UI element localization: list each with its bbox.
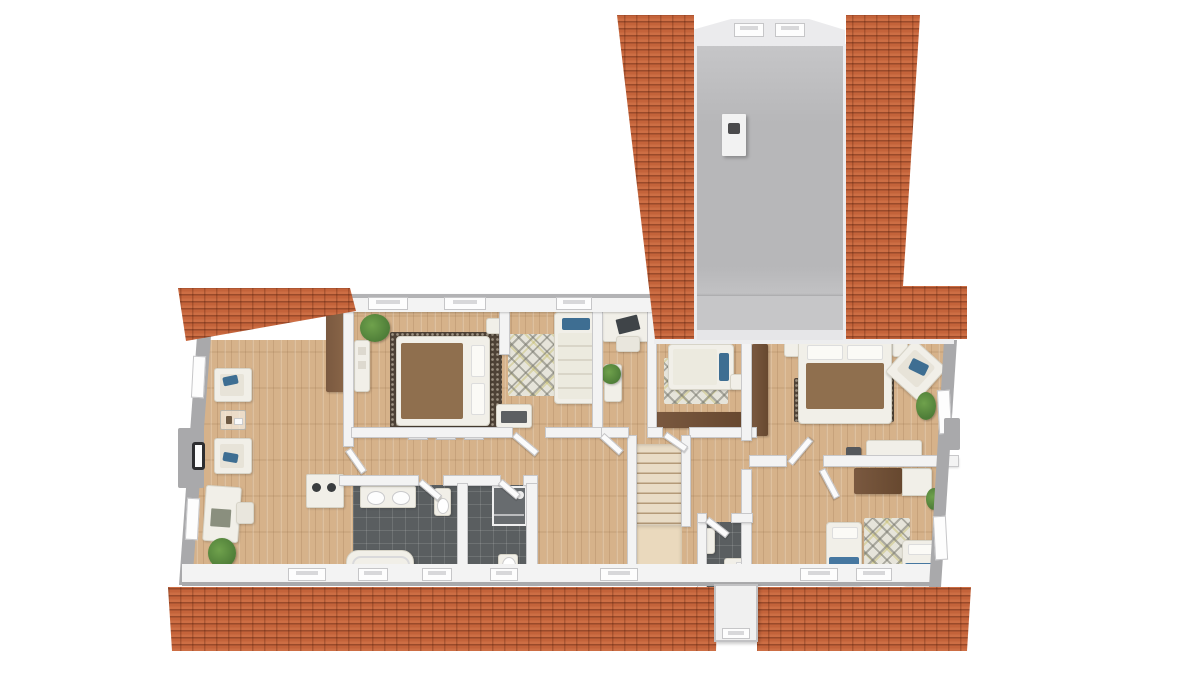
- window: [933, 516, 948, 561]
- bed-pillow: [471, 345, 485, 377]
- single-bed: [668, 344, 734, 390]
- gable-window: [734, 23, 764, 37]
- sink-basin: [327, 483, 336, 492]
- shelf-unit: [354, 340, 370, 392]
- attic-fascia-right: [843, 44, 846, 340]
- wc-dormer-window: [722, 628, 750, 639]
- attic-fascia-left: [694, 44, 697, 340]
- stairwell-wall-left: [628, 436, 636, 582]
- bed-blanket: [806, 363, 884, 409]
- bedroom1-dresser: [496, 404, 532, 428]
- dresser-brown-part: [854, 468, 902, 494]
- plant: [916, 392, 936, 420]
- window: [191, 356, 206, 399]
- basin: [367, 491, 385, 505]
- window: [800, 568, 838, 581]
- bed-pillow: [471, 383, 485, 415]
- sink-basin: [312, 483, 321, 492]
- armchair: [214, 368, 252, 402]
- bathrooms-wall-top-b: [444, 476, 500, 485]
- dresser-front: [501, 411, 527, 423]
- shelf-slot: [358, 347, 366, 355]
- bed-pillow: [847, 345, 883, 360]
- nook-desk-chair: [616, 336, 640, 352]
- left-bay-window: [178, 428, 204, 488]
- basin: [392, 491, 410, 505]
- kitchenette-counter: [306, 474, 344, 508]
- wall-corridor-top-b: [546, 428, 602, 437]
- master-wardrobe: [752, 344, 768, 436]
- window: [556, 297, 592, 310]
- chimney: [722, 114, 746, 156]
- wc-wall-top-b: [732, 514, 752, 522]
- plant: [601, 364, 621, 384]
- window: [368, 297, 408, 310]
- bed-blanket: [558, 333, 594, 399]
- wall-master-kids-a: [750, 456, 786, 466]
- armchair: [214, 438, 252, 474]
- chimney-vent: [728, 123, 740, 134]
- wall-hall-master-a: [742, 342, 751, 440]
- plant: [360, 314, 390, 342]
- wall-bedroom2-nook: [593, 312, 602, 430]
- attic-bottom-wall: [694, 330, 846, 340]
- window: [422, 568, 452, 581]
- single-bed: [554, 312, 598, 404]
- bed-pillow-blue: [562, 318, 590, 330]
- bed-blanket: [673, 349, 717, 385]
- bathrooms-wall-top-a: [340, 476, 418, 485]
- floor-plan-scene: [0, 0, 1200, 675]
- window: [185, 498, 200, 541]
- wall-corridor-top-a: [352, 428, 512, 437]
- double-bed: [396, 336, 490, 426]
- attic-floor: [694, 44, 846, 306]
- window: [444, 297, 486, 310]
- gable-window: [775, 23, 805, 37]
- table-item: [226, 416, 232, 424]
- laptop: [616, 315, 641, 335]
- desk-chair: [236, 502, 254, 524]
- bed-pillow-blue: [719, 353, 729, 381]
- window: [490, 568, 518, 581]
- window: [600, 568, 638, 581]
- desk-blotter: [210, 508, 231, 527]
- sideboard: [650, 412, 744, 428]
- toilet-bowl: [437, 498, 449, 514]
- bed-pillow: [908, 544, 934, 555]
- bay-window-frame: [192, 442, 205, 470]
- window: [358, 568, 388, 581]
- bed-pillow: [832, 527, 858, 539]
- window: [288, 568, 326, 581]
- double-bed: [798, 340, 892, 424]
- wall-bedroom3-bottom-a: [648, 428, 662, 437]
- shower-glass: [494, 514, 524, 516]
- kids-dresser: [854, 468, 930, 494]
- bed-blanket: [401, 343, 463, 419]
- wall-living-bedroom1: [344, 312, 353, 446]
- double-vanity: [360, 486, 416, 508]
- attic-ledge: [694, 296, 846, 330]
- wc-dormer: [714, 584, 758, 642]
- right-bay: [944, 418, 960, 450]
- coffee-table: [220, 410, 246, 430]
- wall-bedroom1-bedroom2: [500, 312, 509, 354]
- table-item: [234, 418, 243, 425]
- shelf-slot: [358, 361, 366, 369]
- staircase-upper-flight: [636, 444, 682, 526]
- window: [856, 568, 892, 581]
- bed-pillow: [807, 345, 843, 360]
